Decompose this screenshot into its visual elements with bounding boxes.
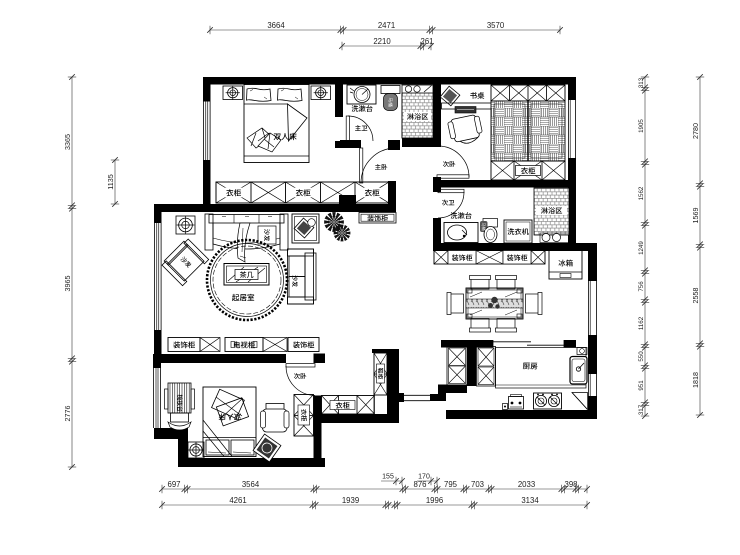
svg-text:317: 317 [638,404,645,415]
svg-text:3570: 3570 [487,21,505,30]
svg-text:951: 951 [638,380,645,391]
svg-text:1569: 1569 [691,208,700,224]
svg-text:398: 398 [564,480,577,489]
svg-text:2210: 2210 [373,37,391,46]
svg-text:697: 697 [167,480,180,489]
svg-text:1996: 1996 [426,496,443,505]
svg-text:1939: 1939 [342,496,359,505]
svg-text:2776: 2776 [63,406,72,422]
svg-text:155: 155 [382,474,394,481]
svg-text:1818: 1818 [691,372,700,388]
svg-text:1562: 1562 [638,186,645,200]
svg-text:795: 795 [444,480,458,489]
svg-text:3134: 3134 [521,496,539,505]
svg-text:756: 756 [638,281,645,292]
svg-text:876: 876 [413,480,426,489]
svg-text:1162: 1162 [638,316,645,330]
svg-text:703: 703 [471,480,484,489]
svg-text:4261: 4261 [229,496,246,505]
svg-text:1249: 1249 [638,241,645,255]
svg-text:261: 261 [420,37,433,46]
svg-text:3564: 3564 [242,480,260,489]
svg-text:3664: 3664 [267,21,285,30]
svg-text:1135: 1135 [106,174,115,189]
svg-text:313: 313 [638,77,645,88]
svg-text:2780: 2780 [691,123,700,139]
svg-text:3365: 3365 [63,134,72,150]
svg-text:2471: 2471 [378,21,395,30]
svg-text:2558: 2558 [691,288,700,304]
svg-text:1905: 1905 [638,119,645,133]
svg-text:3965: 3965 [63,276,72,292]
svg-text:550: 550 [638,351,645,362]
svg-text:2033: 2033 [518,480,535,489]
